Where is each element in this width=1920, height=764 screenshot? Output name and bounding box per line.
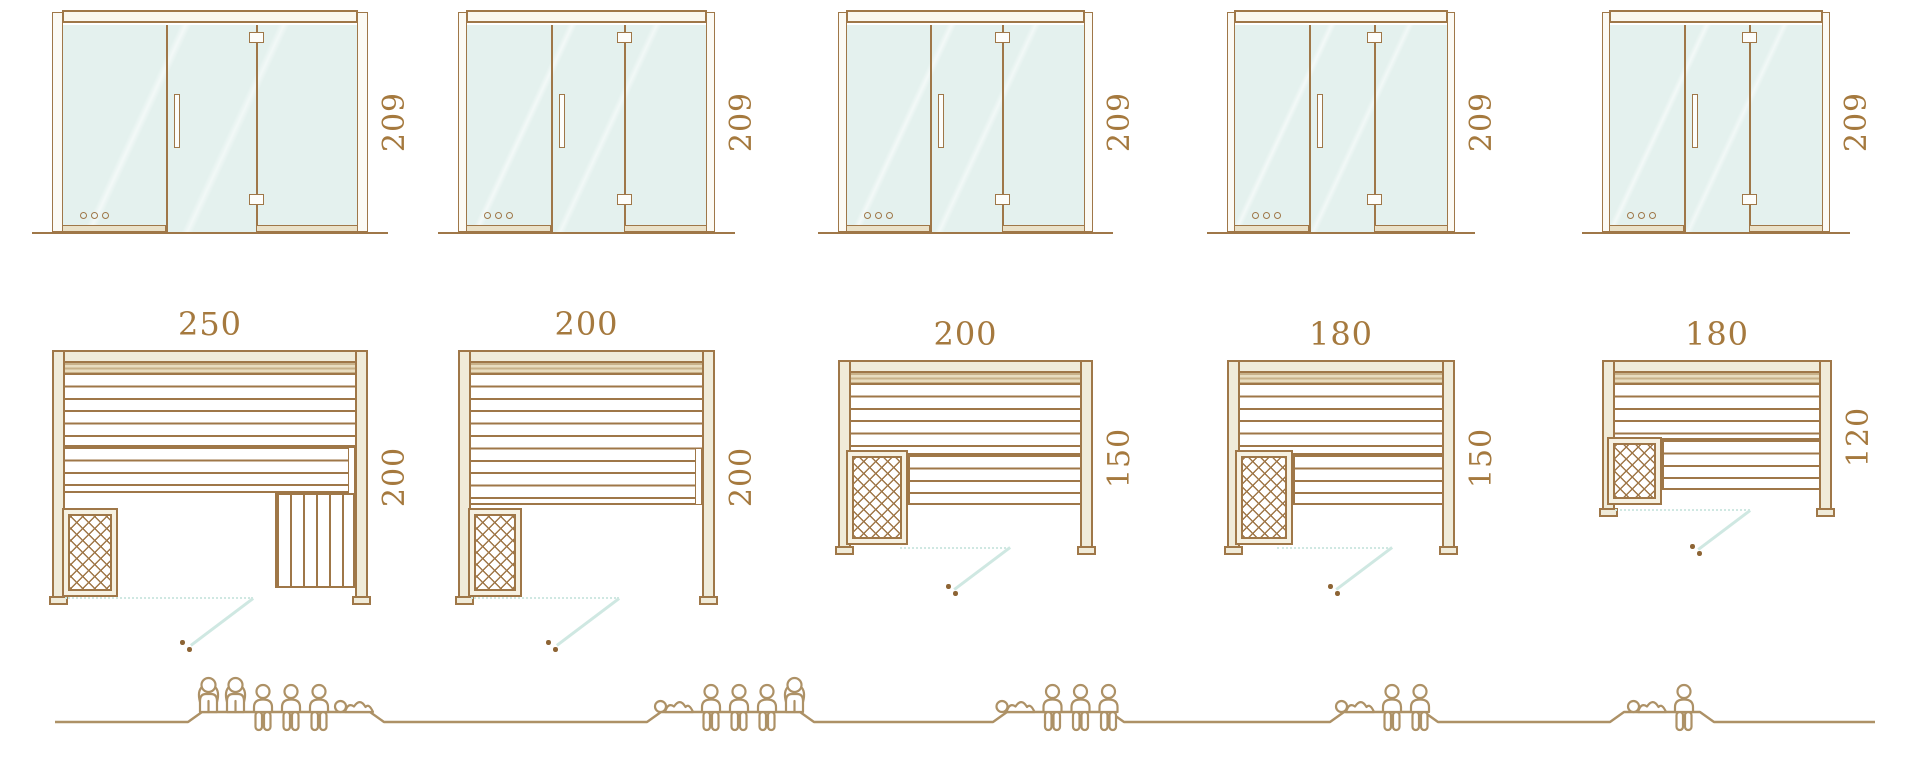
- door-opening-line: [471, 597, 619, 599]
- height-dimension: 209: [1467, 77, 1499, 167]
- width-dimension: 200: [458, 308, 715, 340]
- left-sill: [846, 225, 930, 232]
- top-frame: [846, 10, 1085, 23]
- hinge-icon: [617, 32, 632, 43]
- door-handle: [1692, 94, 1698, 148]
- floor-plan: 200 200: [458, 350, 715, 600]
- people-group: [655, 678, 804, 730]
- right-sill: [256, 225, 358, 232]
- door-handle-dots: [946, 584, 962, 600]
- hinge-icon: [995, 32, 1010, 43]
- floor-plan: 180 150: [1227, 360, 1455, 550]
- left-sill: [466, 225, 550, 232]
- floor-plan: 200 150: [838, 360, 1093, 550]
- door-handle: [1317, 94, 1323, 148]
- back-wall: [838, 360, 1093, 373]
- back-wall: [458, 350, 715, 363]
- upper-bench: [851, 383, 1080, 455]
- hinge-icon: [617, 194, 632, 205]
- door-edge: [1684, 25, 1686, 232]
- upper-bench: [65, 373, 355, 447]
- front-elevation: 209: [838, 10, 1093, 232]
- right-wall: [1080, 360, 1093, 550]
- door-opening-line: [1277, 547, 1392, 549]
- control-dots-icon: [80, 212, 120, 220]
- hinge-icon: [1367, 194, 1382, 205]
- control-dots-icon: [1252, 212, 1292, 220]
- right-sill: [1002, 225, 1084, 232]
- front-elevation: 209: [458, 10, 715, 232]
- top-frame: [1609, 10, 1822, 23]
- diagram-canvas: 209 250 200: [0, 0, 1920, 764]
- hinge-icon: [249, 32, 264, 43]
- door-handle-dots: [546, 640, 562, 656]
- front-elevation: 209: [1602, 10, 1830, 232]
- heater: [1235, 450, 1293, 545]
- heater: [1607, 437, 1662, 505]
- hinge-icon: [995, 194, 1010, 205]
- people-group: [1628, 685, 1693, 730]
- right-post: [706, 12, 715, 232]
- left-sill: [1609, 225, 1684, 232]
- wall-foot: [1439, 546, 1458, 555]
- left-post: [838, 12, 847, 232]
- upper-bench: [1615, 383, 1819, 440]
- floor-line: [32, 232, 388, 234]
- lower-bench: [1662, 440, 1819, 490]
- hinge-icon: [1742, 32, 1757, 43]
- glass-front: [1234, 25, 1447, 232]
- glass-front: [466, 25, 707, 232]
- corner-bench: [275, 493, 355, 588]
- right-post: [1084, 12, 1093, 232]
- backrest-band: [1240, 373, 1442, 383]
- left-sill: [62, 225, 166, 232]
- floor-plan: 250 200: [52, 350, 368, 600]
- people-group: [199, 678, 373, 730]
- right-post: [1822, 12, 1830, 232]
- door-opening-line: [65, 597, 253, 599]
- hinge-icon: [1367, 32, 1382, 43]
- door-edge: [930, 25, 932, 232]
- glass-front: [62, 25, 358, 232]
- upper-bench: [471, 373, 702, 505]
- people-group: [997, 685, 1118, 730]
- control-dots-icon: [864, 212, 904, 220]
- right-post: [1447, 12, 1455, 232]
- depth-dimension: 150: [1105, 413, 1137, 503]
- depth-dimension: 150: [1467, 413, 1499, 503]
- control-dots-icon: [484, 212, 524, 220]
- backrest-band: [471, 363, 702, 373]
- top-frame: [466, 10, 707, 23]
- depth-dimension: 120: [1844, 392, 1876, 482]
- top-frame: [62, 10, 358, 23]
- left-post: [458, 12, 467, 232]
- door-edge: [166, 25, 168, 232]
- heater: [62, 508, 118, 597]
- left-post: [1602, 12, 1610, 232]
- right-sill: [1374, 225, 1448, 232]
- width-dimension: 180: [1227, 318, 1455, 350]
- right-post: [357, 12, 368, 232]
- back-wall: [1602, 360, 1832, 373]
- width-dimension: 200: [838, 318, 1093, 350]
- floor-plan: 180 120: [1602, 360, 1832, 512]
- wall-foot: [1816, 508, 1835, 517]
- door-opening-line: [900, 547, 1010, 549]
- height-dimension: 209: [1105, 77, 1137, 167]
- glass-front: [1609, 25, 1822, 232]
- floor-line: [1207, 232, 1475, 234]
- door-handle-dots: [1328, 584, 1344, 600]
- heater: [846, 450, 908, 545]
- door-opening-line: [1615, 509, 1750, 511]
- glass-front: [846, 25, 1085, 232]
- front-elevation: 209: [52, 10, 368, 232]
- width-dimension: 250: [52, 308, 368, 340]
- door-swing-line: [190, 597, 254, 646]
- left-post: [52, 12, 63, 232]
- wall-foot: [835, 546, 854, 555]
- hinge-icon: [249, 194, 264, 205]
- backrest-band: [851, 373, 1080, 383]
- heater: [468, 508, 522, 597]
- backrest-band: [1615, 373, 1819, 383]
- height-dimension: 209: [380, 77, 412, 167]
- wall-foot: [352, 596, 371, 605]
- door-handle-dots: [1690, 544, 1706, 560]
- control-dots-icon: [1627, 212, 1667, 220]
- right-sill: [1749, 225, 1823, 232]
- right-wall: [1819, 360, 1832, 512]
- door-edge: [1309, 25, 1311, 232]
- back-wall: [52, 350, 368, 363]
- door-edge: [551, 25, 553, 232]
- width-dimension: 180: [1602, 318, 1832, 350]
- left-post: [1227, 12, 1235, 232]
- right-sill: [624, 225, 707, 232]
- door-handle: [559, 94, 565, 148]
- bench-side-board: [695, 448, 702, 505]
- top-frame: [1234, 10, 1447, 23]
- height-dimension: 209: [1842, 77, 1874, 167]
- lower-bench: [1293, 455, 1442, 505]
- door-handle-dots: [180, 640, 196, 656]
- wall-foot: [1224, 546, 1243, 555]
- door-swing-line: [556, 597, 620, 646]
- wall-foot: [1077, 546, 1096, 555]
- lower-bench: [65, 447, 355, 493]
- height-dimension: 209: [727, 77, 759, 167]
- floor-line: [438, 232, 735, 234]
- lower-bench: [908, 455, 1080, 505]
- door-handle: [174, 94, 180, 148]
- front-elevation: 209: [1227, 10, 1455, 232]
- backrest-band: [65, 363, 355, 373]
- back-wall: [1227, 360, 1455, 373]
- depth-dimension: 200: [727, 432, 759, 522]
- right-wall: [702, 350, 715, 600]
- right-wall: [1442, 360, 1455, 550]
- depth-dimension: 200: [380, 432, 412, 522]
- capacity-illustration: [0, 660, 1920, 764]
- upper-bench: [1240, 383, 1442, 455]
- left-sill: [1234, 225, 1309, 232]
- hinge-icon: [1742, 194, 1757, 205]
- right-wall: [355, 350, 368, 600]
- floor-line: [818, 232, 1113, 234]
- floor-line: [1582, 232, 1850, 234]
- door-handle: [938, 94, 944, 148]
- wall-foot: [699, 596, 718, 605]
- people-group: [1336, 685, 1429, 730]
